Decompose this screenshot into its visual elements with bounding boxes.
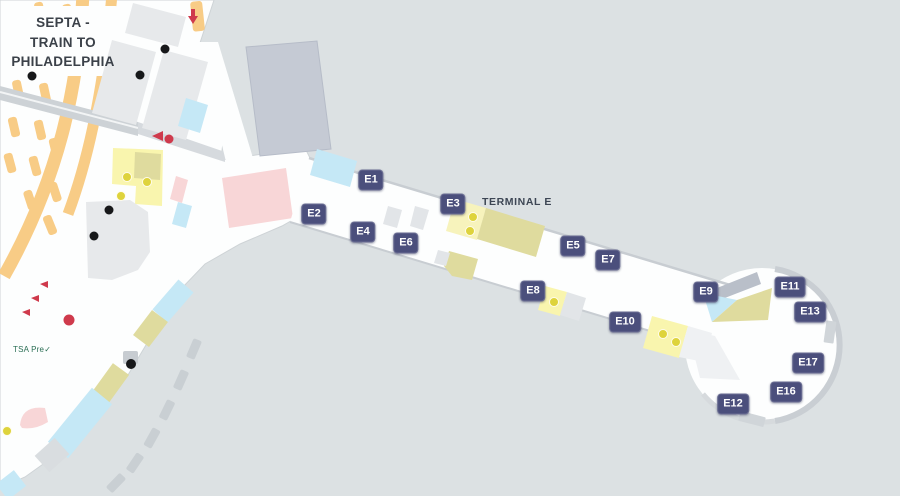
gate-label-e7[interactable]: E7 <box>595 250 620 271</box>
gate-label-e11[interactable]: E11 <box>775 277 806 298</box>
gate-label-e16[interactable]: E16 <box>770 382 802 403</box>
gate-label-e12[interactable]: E12 <box>717 394 749 415</box>
gate-label-e10[interactable]: E10 <box>609 312 641 333</box>
gate-label-e2[interactable]: E2 <box>301 204 326 225</box>
gate-label-e1[interactable]: E1 <box>358 170 383 191</box>
airport-terminal-map-page: { "map": { "septa_label": { "line1": "SE… <box>0 0 900 496</box>
gate-label-e9[interactable]: E9 <box>693 282 718 303</box>
gate-labels-layer: E1E2E3E4E5E6E7E8E9E10E11E12E13E16E17 <box>0 0 900 496</box>
gate-label-e4[interactable]: E4 <box>350 222 375 243</box>
gate-label-e13[interactable]: E13 <box>794 302 826 323</box>
gate-label-e3[interactable]: E3 <box>440 194 465 215</box>
gate-label-e17[interactable]: E17 <box>792 353 824 374</box>
gate-label-e6[interactable]: E6 <box>393 233 418 254</box>
gate-label-e8[interactable]: E8 <box>520 281 545 302</box>
gate-label-e5[interactable]: E5 <box>560 236 585 257</box>
